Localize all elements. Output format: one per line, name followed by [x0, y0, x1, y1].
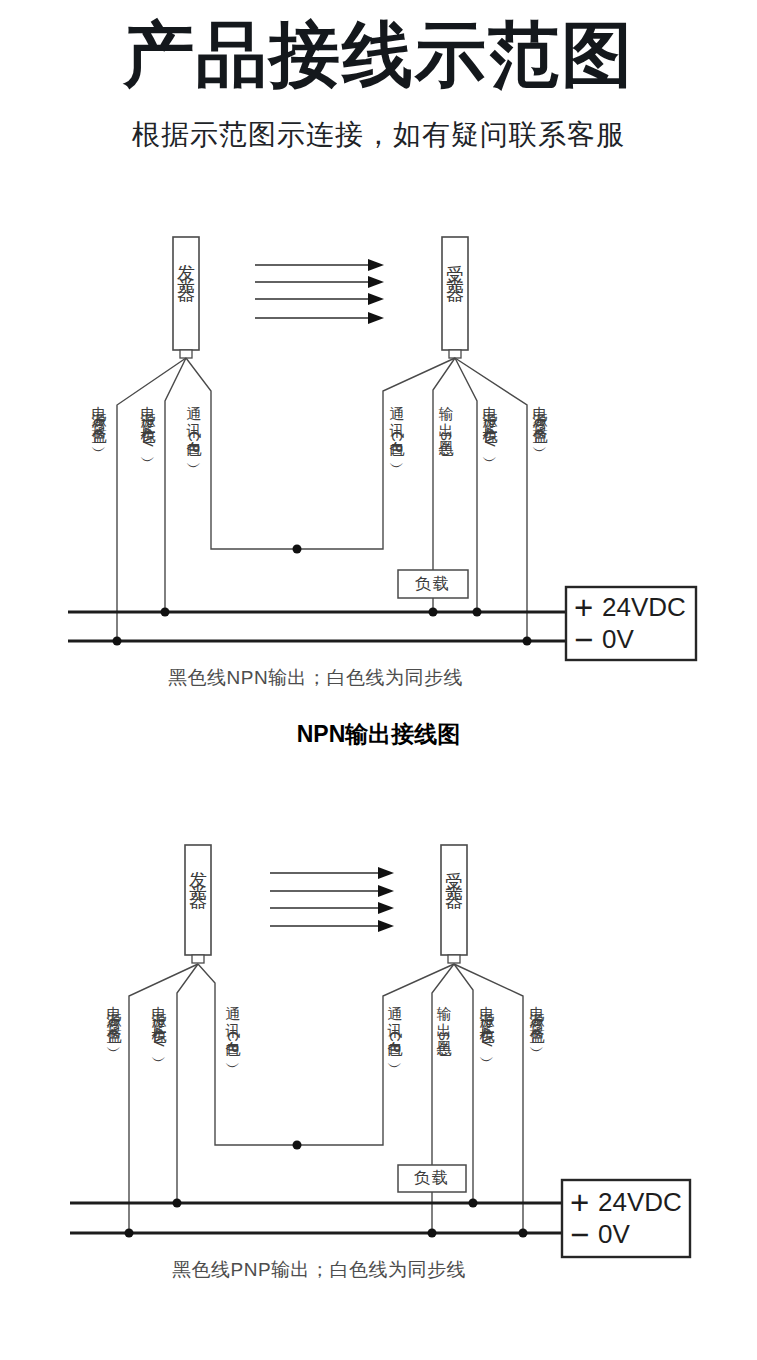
- wire-power-positive-emitter: [165, 358, 186, 612]
- beam-arrowhead-icon: [368, 259, 384, 271]
- beam-arrowhead-icon: [378, 867, 394, 879]
- wire-label-power-positive: 电源正（棕色24V）: [481, 394, 500, 449]
- wire-label-communication: 通讯（白色CP）: [185, 394, 204, 455]
- npn-diagram-title: NPN输出接线图: [0, 719, 757, 750]
- junction-dot: [428, 1229, 437, 1238]
- wire-label-power-positive: 电源正（棕色24V）: [150, 994, 169, 1049]
- pnp-caption: 黑色线PNP输出；白色线为同步线: [172, 1257, 466, 1283]
- wire-label-power-positive: 电源正（棕色24V）: [478, 994, 497, 1049]
- emitter-cable-gland: [192, 955, 204, 963]
- emitter-label: 发光器: [185, 857, 211, 890]
- power-supply-labels: +24VDC −0V: [562, 1180, 690, 1257]
- load-label: 负载: [398, 574, 468, 595]
- wire-label-output: 输出（黑色S）: [435, 994, 454, 1043]
- npn-caption: 黑色线NPN输出；白色线为同步线: [168, 665, 463, 691]
- wire-label-communication: 通讯（白色CP）: [224, 994, 243, 1055]
- beam-arrowhead-icon: [368, 293, 384, 305]
- junction-dot: [293, 545, 302, 554]
- power-supply-labels: +24VDC −0V: [566, 587, 696, 660]
- page: 产品接线示范图 根据示范图示连接，如有疑问联系客服: [0, 0, 757, 1360]
- light-beam-arrows: [255, 259, 384, 324]
- junction-dot: [161, 608, 170, 617]
- junction-dot: [113, 637, 122, 646]
- wire-label-power-negative: 电源负（蓝色0V）: [531, 394, 550, 439]
- junction-dot: [473, 608, 482, 617]
- psu-positive-row: +24VDC: [570, 1188, 690, 1218]
- page-title: 产品接线示范图: [0, 8, 757, 103]
- receiver-label: 受光器: [441, 857, 467, 890]
- wire-sync-communication: [186, 358, 455, 549]
- emitter-label: 发光器: [173, 250, 199, 283]
- emitter-cable-gland: [180, 350, 192, 358]
- wire-output-to-load: [433, 358, 455, 570]
- psu-negative-row: −0V: [574, 625, 696, 655]
- receiver-cable-gland: [448, 955, 460, 963]
- wire-label-output: 输出（黑色S）: [437, 394, 456, 443]
- beam-arrowhead-icon: [378, 920, 394, 932]
- junction-dot: [469, 1199, 478, 1208]
- wire-label-power-negative: 电源负（蓝色0V）: [528, 994, 547, 1039]
- wire-label-communication: 通讯（白色CP）: [386, 994, 405, 1055]
- psu-negative-row: −0V: [570, 1220, 690, 1250]
- junction-dot: [293, 1141, 302, 1150]
- minus-sign: −: [574, 626, 602, 654]
- wire-label-power-negative: 电源负（蓝色0V）: [105, 994, 124, 1039]
- wire-label-power-negative: 电源负（蓝色0V）: [90, 394, 109, 439]
- plus-sign: +: [570, 1189, 598, 1217]
- junction-dot: [519, 1229, 528, 1238]
- junction-dot: [173, 1199, 182, 1208]
- wire-label-power-positive: 电源正（棕色24V）: [139, 394, 158, 449]
- plus-sign: +: [574, 594, 602, 622]
- wire-label-communication: 通讯（白色CP）: [388, 394, 407, 455]
- psu-positive-row: +24VDC: [574, 593, 696, 623]
- load-label: 负载: [398, 1168, 466, 1189]
- beam-arrowhead-icon: [378, 902, 394, 914]
- junction-dot: [523, 637, 532, 646]
- beam-arrowhead-icon: [368, 276, 384, 288]
- wire-power-positive-emitter: [177, 964, 198, 1203]
- receiver-cable-gland: [449, 350, 461, 358]
- junction-dot: [125, 1229, 134, 1238]
- minus-sign: −: [570, 1221, 598, 1249]
- junction-dot: [429, 608, 438, 617]
- receiver-label: 受光器: [442, 250, 468, 283]
- beam-arrowhead-icon: [368, 312, 384, 324]
- page-subtitle: 根据示范图示连接，如有疑问联系客服: [0, 116, 757, 154]
- beam-arrowhead-icon: [378, 885, 394, 897]
- light-beam-arrows: [270, 867, 394, 932]
